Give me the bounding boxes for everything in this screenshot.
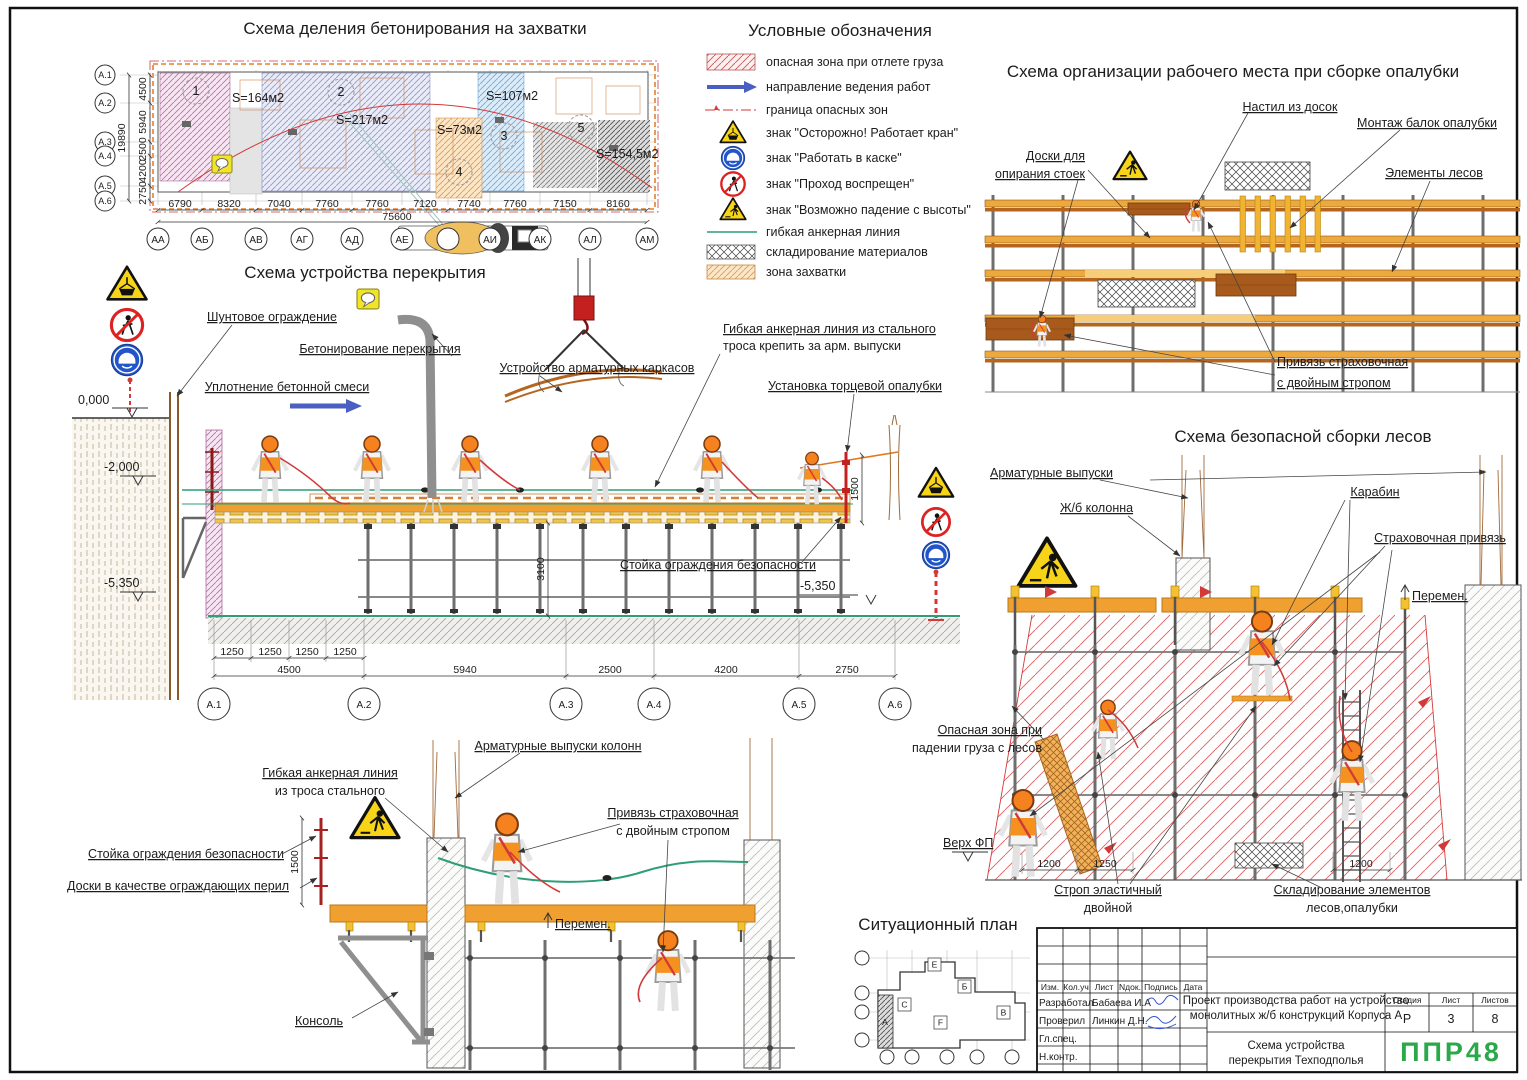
plan-title: Схема деления бетонирования на захватки — [243, 19, 586, 38]
svg-text:1250: 1250 — [333, 646, 357, 658]
axis-label: А.4 — [98, 151, 112, 161]
legend-item: опасная зона при отлете груза — [766, 55, 943, 69]
zone-num: 5 — [578, 121, 585, 135]
legend-item: знак "Возможно падение с высоты" — [766, 203, 971, 217]
level-minus5350: -5,350 — [104, 576, 139, 590]
sheet-pile-wall — [170, 392, 178, 700]
label-boards: Доски для — [1026, 149, 1085, 163]
perem-mark: Перемен. — [1401, 585, 1468, 603]
svg-text:АЕ: АЕ — [395, 235, 409, 246]
label-rebar: Арматурные выпуски колонн — [475, 739, 642, 753]
label-anchor: Гибкая анкерная линия — [262, 766, 398, 780]
comment-icon — [212, 155, 232, 173]
svg-text:Кол.уч: Кол.уч — [1063, 982, 1089, 992]
svg-text:2750: 2750 — [835, 664, 859, 676]
legend-item: знак "Проход воспрещен" — [766, 177, 914, 191]
legend-item: знак "Осторожно! Работает кран" — [766, 126, 958, 140]
legend-swatch-danger-zone — [707, 54, 755, 70]
svg-text:Лист: Лист — [1442, 995, 1461, 1005]
rebar-columns — [889, 415, 900, 520]
worker-figure — [647, 931, 688, 1011]
svg-text:7760: 7760 — [503, 198, 527, 210]
stage-value: Р — [1403, 1012, 1411, 1026]
label-perem: Перемен. — [555, 917, 611, 931]
svg-text:8320: 8320 — [217, 198, 241, 210]
no-passage-sign-icon — [721, 172, 744, 195]
svg-text:F: F — [938, 1018, 943, 1028]
helmet-sign-icon — [721, 146, 744, 169]
axis-label: А.2 — [98, 98, 112, 108]
svg-text:Е: Е — [932, 960, 938, 970]
sheet-value: 3 — [1448, 1012, 1455, 1026]
situation-plan: Ситуационный план А С Е Б F В — [855, 915, 1030, 1064]
situation-title: Ситуационный план — [858, 915, 1017, 934]
svg-text:1250: 1250 — [295, 646, 319, 658]
svg-text:Гл.спец.: Гл.спец. — [1039, 1034, 1077, 1045]
doc-title: Схема устройства — [1247, 1040, 1345, 1052]
project-name: монолитных ж/б конструкций Корпуса А — [1190, 1010, 1403, 1022]
legend-item: граница опасных зон — [766, 103, 888, 117]
drawing-sheet: Схема деления бетонирования на захватки … — [0, 0, 1527, 1080]
svg-text:Стадия: Стадия — [1393, 995, 1422, 1005]
right-column — [744, 738, 780, 1068]
mixer-truck — [398, 222, 548, 254]
direction-arrow — [290, 399, 362, 413]
label-carabiner: Карабин — [1350, 485, 1399, 499]
axis-label: А.3 — [98, 137, 112, 147]
zone-num: 2 — [338, 85, 345, 99]
svg-text:7120: 7120 — [413, 198, 437, 210]
label-guard-post: Стойка ограждения безопасности — [620, 558, 816, 572]
scaffold-scheme: Схема безопасной сборки лесов — [912, 427, 1522, 915]
deck-left — [330, 905, 427, 922]
zone-area: S=107м2 — [486, 89, 538, 103]
svg-text:АМ: АМ — [640, 235, 655, 246]
zone-area: S=73м2 — [437, 123, 482, 137]
svg-text:Листов: Листов — [1481, 995, 1509, 1005]
svg-text:2500: 2500 — [598, 664, 622, 676]
svg-text:6790: 6790 — [168, 198, 192, 210]
svg-text:А.2: А.2 — [356, 700, 371, 711]
legend-item: направление ведения работ — [766, 80, 931, 94]
worker-figure — [484, 813, 531, 903]
svg-text:АВ: АВ — [249, 235, 263, 246]
svg-text:В: В — [1001, 1008, 1007, 1018]
boundary-post — [128, 378, 133, 413]
svg-text:АД: АД — [345, 235, 359, 246]
legend-swatch-direction-arrow — [707, 81, 757, 93]
axis-label: А.5 — [98, 181, 112, 191]
label-harness: Привязь страховочная — [1277, 355, 1408, 369]
rc-column — [1176, 455, 1210, 650]
svg-text:А: А — [882, 1017, 888, 1027]
label-anchor: Гибкая анкерная линия из стального — [723, 322, 936, 336]
svg-text:7040: 7040 — [267, 198, 291, 210]
label-column: Ж/б колонна — [1060, 501, 1133, 515]
dim: 4500 — [137, 77, 149, 101]
svg-text:Линкин Д.Н.: Линкин Д.Н. — [1092, 1016, 1147, 1027]
svg-text:Н.контр.: Н.контр. — [1039, 1052, 1078, 1063]
svg-text:8160: 8160 — [606, 198, 630, 210]
center-column — [427, 740, 465, 1068]
label-danger: падении груза с лесов — [912, 741, 1042, 755]
svg-text:А.4: А.4 — [646, 700, 661, 711]
legend-item: зона захватки — [766, 265, 846, 279]
console-truss — [338, 938, 430, 1042]
svg-text:7760: 7760 — [315, 198, 339, 210]
svg-text:Б: Б — [962, 982, 968, 992]
plan-scheme: Схема деления бетонирования на захватки … — [95, 19, 659, 254]
dim-total: 19890 — [116, 123, 128, 152]
legend-title: Условные обозначения — [748, 21, 932, 40]
label-harness: Страховочная привязь — [1374, 531, 1506, 545]
label-harness: с двойным стропом — [1277, 376, 1391, 390]
worker-figure — [253, 436, 287, 502]
helmet-sign-icon — [922, 541, 949, 568]
label-console: Консоль — [295, 1014, 343, 1028]
worker-figure — [453, 436, 487, 502]
svg-text:5940: 5940 — [453, 664, 477, 676]
svg-text:7740: 7740 — [457, 198, 481, 210]
slab-deck — [215, 494, 850, 523]
svg-text:А.5: А.5 — [791, 700, 806, 711]
fall-warning-sign-icon — [1019, 538, 1076, 586]
legend-item: гибкая анкерная линия — [766, 225, 900, 239]
slab-scheme: Схема устройства перекрытия 0,000 -2,000… — [72, 258, 960, 720]
legend: Условные обозначения опасная зона при от… — [705, 21, 971, 279]
fall-warning-sign-icon — [1114, 152, 1147, 180]
legend-item: знак "Работать в каске" — [766, 151, 902, 165]
slab-title: Схема устройства перекрытия — [244, 263, 485, 282]
axis-label: А.1 — [98, 70, 112, 80]
zone-area: S=164м2 — [232, 91, 284, 105]
level-0000: 0,000 — [78, 393, 109, 407]
worker-figure — [355, 436, 389, 502]
label-harness: Привязь страховочная — [607, 806, 738, 820]
no-passage-sign-icon — [111, 309, 142, 340]
sheets-value: 8 — [1492, 1012, 1499, 1026]
board-stack-lines — [986, 209, 1296, 329]
svg-text:1200: 1200 — [1349, 858, 1373, 870]
level-minus5350-right: -5,350 — [800, 579, 835, 593]
anchor-line — [438, 858, 748, 882]
svg-text:АБ: АБ — [195, 235, 209, 246]
label-rebar-cages: Устройство арматурных каркасов — [500, 361, 695, 375]
label-guard: Стойка ограждения безопасности — [88, 847, 284, 861]
top-fp-mark: Верх ФП — [943, 836, 993, 861]
svg-text:4500: 4500 — [277, 664, 301, 676]
label-storage: лесов,опалубки — [1306, 901, 1398, 915]
label-perem: Перемен. — [1412, 589, 1468, 603]
svg-text:Разработал: Разработал — [1039, 997, 1094, 1009]
svg-text:Проверил: Проверил — [1039, 1016, 1085, 1027]
label-rebar: Арматурные выпуски — [990, 466, 1113, 480]
svg-text:АК: АК — [534, 235, 547, 246]
dim: 4200 — [137, 159, 149, 183]
crane-hook-assembly — [505, 258, 662, 402]
svg-text:1500: 1500 — [849, 477, 861, 501]
label-harness: с двойным стропом — [616, 824, 730, 838]
label-elements: Элементы лесов — [1385, 166, 1483, 180]
crane-warning-sign-icon — [720, 121, 746, 142]
label-boards: Доски в качестве ограждающих перил — [67, 879, 289, 893]
label-sling: Строп эластичный — [1054, 883, 1162, 897]
label-danger: Опасная зона при — [938, 723, 1042, 737]
wall-bracket — [183, 518, 206, 578]
svg-text:1250: 1250 — [220, 646, 244, 658]
legend-swatch-danger-border — [705, 105, 757, 110]
crane-warning-sign-icon — [919, 468, 954, 497]
title-block: Изм. Кол.уч Лист Nдок. Подпись Дата Разр… — [1037, 928, 1517, 1072]
fall-warning-sign-icon — [720, 198, 746, 219]
dim: 2750 — [137, 181, 149, 205]
guard-post — [314, 818, 328, 905]
crane-warning-sign-icon — [108, 267, 147, 300]
work-platform — [1232, 696, 1292, 701]
svg-text:АГ: АГ — [296, 235, 309, 246]
svg-text:7150: 7150 — [553, 198, 577, 210]
storage-hatch — [1098, 280, 1195, 307]
comment-icon — [357, 289, 379, 309]
right-wall-column — [1465, 455, 1521, 880]
storage-hatch — [1225, 162, 1310, 190]
svg-text:Дата: Дата — [1184, 982, 1203, 992]
doc-title: перекрытия Техподполья — [1229, 1055, 1364, 1067]
svg-text:1200: 1200 — [1037, 858, 1061, 870]
label-endform: Установка торцевой опалубки — [768, 379, 942, 393]
helmet-sign-icon — [111, 344, 142, 375]
dim: 5940 — [137, 110, 149, 134]
worker-figure — [583, 436, 617, 502]
svg-text:АЛ: АЛ — [583, 235, 596, 246]
axis-label: А.6 — [98, 196, 112, 206]
svg-text:4200: 4200 — [714, 664, 738, 676]
svg-text:А.6: А.6 — [887, 700, 902, 711]
legend-swatch-zahvatka — [707, 265, 755, 279]
label-sling: двойной — [1084, 901, 1133, 915]
zone-area: S=217м2 — [336, 113, 388, 127]
workplace-scheme: Схема организации рабочего места при сбо… — [985, 62, 1520, 392]
label-anchor: троса крепить за арм. выпуски — [723, 339, 901, 353]
svg-text:А.1: А.1 — [206, 700, 221, 711]
svg-text:1250: 1250 — [258, 646, 282, 658]
label-compaction: Уплотнение бетонной смеси — [205, 380, 370, 394]
svg-text:Бабаева И.А: Бабаева И.А — [1092, 997, 1151, 1009]
svg-text:АА: АА — [151, 235, 165, 246]
svg-text:Nдок.: Nдок. — [1119, 982, 1141, 992]
svg-text:АИ: АИ — [483, 235, 497, 246]
plan-row-axes: А.1 А.2 А.3 А.4 А.5 А.6 4500 5940 2500 4… — [95, 65, 150, 211]
label-storage: Складирование элементов — [1274, 883, 1431, 897]
zone-area: S=154,5м2 — [596, 147, 659, 161]
console-scheme: 1500 Гибкая анкерная линия из троса стал… — [67, 738, 795, 1070]
svg-text:А.3: А.3 — [558, 700, 573, 711]
anchor-clamp — [603, 875, 612, 881]
svg-text:7760: 7760 — [365, 198, 389, 210]
svg-text:3100: 3100 — [535, 557, 547, 581]
dim-total: 75600 — [382, 211, 411, 223]
dim: 1500 — [289, 850, 301, 874]
drawing-canvas: Схема деления бетонирования на захватки … — [0, 0, 1527, 1080]
zone-num: 4 — [456, 165, 463, 179]
project-name: Проект производства работ на устройство — [1183, 995, 1409, 1007]
boundary-post-right — [928, 570, 944, 621]
label-beams: Монтаж балок опалубки — [1357, 116, 1497, 130]
zone-num: 3 — [501, 129, 508, 143]
ground-hatch — [208, 618, 960, 644]
label-boards: опирания стоек — [995, 167, 1085, 181]
ppr48-logo: ППР48 — [1400, 1037, 1502, 1067]
basement-wall — [206, 430, 222, 618]
svg-text:Подпись: Подпись — [1144, 982, 1178, 992]
storage-hatch — [1235, 843, 1303, 868]
legend-item: складирование материалов — [766, 245, 928, 259]
scaffold-title: Схема безопасной сборки лесов — [1174, 427, 1431, 446]
plan-col-dims: 6790 8320 7040 7760 7760 7120 7740 7760 … — [147, 198, 658, 250]
label-anchor: из троса стального — [275, 784, 385, 798]
svg-text:Лист: Лист — [1095, 982, 1114, 992]
label-sheetpile: Шунтовое ограждение — [207, 310, 337, 324]
level-minus2000: -2,000 — [104, 460, 139, 474]
label-deck: Настил из досок — [1243, 100, 1338, 114]
no-passage-sign-icon — [922, 508, 949, 535]
label-concreting: Бетонирование перекрытия — [299, 342, 460, 356]
svg-text:1250: 1250 — [1093, 858, 1117, 870]
legend-swatch-storage — [707, 245, 755, 259]
svg-text:С: С — [901, 1000, 907, 1010]
dim: 2500 — [137, 137, 149, 161]
zone-num: 1 — [193, 84, 200, 98]
workplace-title: Схема организации рабочего места при сбо… — [1007, 62, 1459, 81]
label-topfp: Верх ФП — [943, 836, 993, 850]
svg-text:Изм.: Изм. — [1041, 982, 1059, 992]
